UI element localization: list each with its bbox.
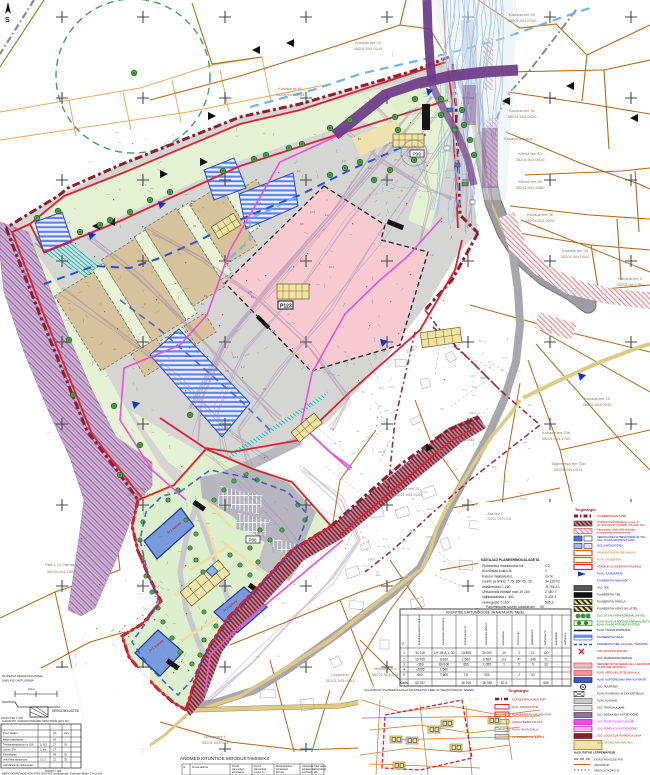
svg-text:suurused: suurused — [302, 771, 313, 774]
svg-text:MERGIKORDADE KRUVITE (EVI M3 L: MERGIKORDADE KRUVITE (EVI M3 Lindistavad… — [2, 772, 102, 775]
svg-text:35201:004:0650: 35201:004:0650 — [508, 114, 538, 119]
svg-text:35201:004:0100: 35201:004:0100 — [394, 492, 424, 497]
svg-text:OLD. KAITSEVÖÖND: OLD. KAITSEVÖÖND — [597, 544, 623, 548]
svg-text:1C: 1C — [464, 673, 469, 677]
svg-text:märkused: märkused — [563, 633, 567, 645]
svg-text:35201:004:044: 35201:004:044 — [202, 740, 229, 745]
svg-text:kõlv: kõlv — [516, 369, 521, 373]
svg-text:GL: GL — [64, 743, 68, 747]
svg-text:liitmisel: liitmisel — [276, 771, 284, 774]
svg-text:690: 690 — [417, 673, 423, 677]
svg-text:35201: 35201 — [469, 411, 477, 415]
svg-text:35201:004:1580: 35201:004:1580 — [516, 185, 546, 190]
svg-text:595 1: 595 1 — [545, 600, 554, 604]
svg-text:34 115 92: 34 115 92 — [545, 580, 560, 584]
svg-text:OMANDIPIIR: OMANDIPIIR — [594, 763, 610, 767]
svg-text:Kanada tee 44: Kanada tee 44 — [355, 40, 382, 45]
svg-text:veevõrkanalisatsioon: veevõrkanalisatsioon — [3, 758, 28, 762]
svg-text:2: 2 — [518, 663, 520, 667]
svg-text:hoonete arv: hoonete arv — [516, 631, 520, 645]
svg-text:4.5: 4.5 — [440, 407, 444, 411]
svg-text:1.2: 1.2 — [445, 522, 449, 526]
svg-text:1.2: 1.2 — [412, 463, 416, 467]
svg-text:Kanada tee 42a: Kanada tee 42a — [504, 136, 533, 141]
svg-text:1.2: 1.2 — [297, 169, 301, 173]
svg-text:2: 2 — [518, 651, 520, 655]
svg-text:12.4: 12.4 — [310, 210, 316, 214]
svg-text:71: 71 — [544, 658, 548, 662]
svg-text:PLAN. PUURKAEV JA SAN.KAITSEAL: PLAN. PUURKAEV JA SAN.KAITSEALA — [597, 692, 644, 696]
svg-text:Kanada tee 24b: Kanada tee 24b — [542, 430, 571, 435]
svg-text:87.6: 87.6 — [501, 681, 507, 685]
svg-text:OLD. TELEFONI JAOTUSKAPP: OLD. TELEFONI JAOTUSKAPP — [597, 720, 635, 724]
svg-text:suurim ja ümber 7.75..85/-X5..: suurim ja ümber 7.75..85/-X5...30 — [482, 580, 532, 584]
svg-text:NÄITAJAD PLANEERINGUALADETA: NÄITAJAD PLANEERINGUALADETA — [481, 558, 540, 562]
svg-text:S: S — [5, 17, 10, 24]
svg-text:Lepatriinu: Lepatriinu — [331, 672, 349, 677]
svg-text:Jõe tee 2: Jõe tee 2 — [487, 511, 504, 516]
svg-text:SÕIDUTEE 1:400: SÕIDUTEE 1:400 — [1, 715, 24, 720]
svg-text:4.5: 4.5 — [225, 369, 229, 373]
svg-text:4: 4 — [403, 668, 405, 672]
svg-text:1.2: 1.2 — [473, 442, 477, 446]
svg-text:Laane tee 2: Laane tee 2 — [449, 431, 471, 436]
svg-text:2: 2 — [403, 658, 405, 662]
svg-text:Üh/100: Üh/100 — [439, 663, 450, 667]
svg-text:35201: 35201 — [480, 376, 488, 380]
svg-text:KRUNTIDE EHITUSÕIGUSE JA NÄITA: KRUNTIDE EHITUSÕIGUSE JA NÄITAJATE TABEL — [446, 610, 525, 615]
svg-text:1.2: 1.2 — [325, 213, 329, 217]
svg-text:ikkija kvaliteasest: ikkija kvaliteasest — [3, 738, 23, 742]
svg-text:Tingmärgid: Tingmärgid — [508, 689, 529, 693]
svg-text:13 800: 13 800 — [461, 651, 471, 655]
svg-text:35201: 35201 — [520, 497, 528, 501]
svg-text:149: 149 — [530, 658, 536, 662]
svg-text:123: 123 — [543, 651, 549, 655]
svg-text:PLAN. JUURDEPÄÄS: PLAN. JUURDEPÄÄS — [597, 572, 623, 576]
svg-text:kõlv: kõlv — [376, 573, 381, 577]
svg-text:Metsavahi 4: Metsavahi 4 — [204, 734, 226, 739]
svg-text:35201:004:0034: 35201:004:0034 — [487, 517, 512, 521]
svg-text:Planeeritud maakasutus ha: Planeeritud maakasutus ha — [482, 564, 523, 568]
svg-text:~2000: ~2000 — [416, 668, 425, 672]
svg-text:35203:004:0005: 35203:004:0005 — [526, 218, 556, 223]
svg-text:Kanada tee 3: Kanada tee 3 — [618, 276, 643, 281]
svg-text:35201:004:1750: 35201:004:1750 — [542, 436, 572, 441]
svg-text:35201: 35201 — [438, 449, 446, 453]
svg-text:PLAN. TÄNAVA PIKIPROFIIL: PLAN. TÄNAVA PIKIPROFIIL — [597, 628, 631, 632]
svg-text:8.1: 8.1 — [343, 525, 347, 529]
svg-text:35201:004:0045: 35201:004:0045 — [583, 402, 613, 407]
svg-text:Jaotus 376: Jaotus 376 — [3, 748, 16, 752]
svg-text:1.2: 1.2 — [206, 134, 210, 138]
svg-text:Kanada tee 36: Kanada tee 36 — [527, 212, 554, 217]
svg-text:kavandatav sihtotstarve: kavandatav sihtotstarve — [441, 617, 445, 645]
svg-text:suurus m²: suurus m² — [254, 771, 265, 774]
svg-text:12.4: 12.4 — [256, 201, 262, 205]
svg-text:1.2: 1.2 — [383, 537, 387, 541]
svg-text:Krundi aadress: Krundi aadress — [192, 766, 209, 769]
svg-text:-: - — [64, 739, 65, 742]
svg-text:VAJADUSEL RISTMIKUL: VAJADUSEL RISTMIKUL — [597, 665, 627, 669]
svg-text:krundi suurus m²: krundi suurus m² — [463, 626, 467, 645]
svg-text:tee: tee — [443, 559, 447, 563]
svg-text:P99: P99 — [413, 152, 422, 157]
svg-text:LIIKLUSOHTLIK RISTMIK: LIIKLUSOHTLIK RISTMIK — [597, 649, 628, 653]
svg-text:12.4: 12.4 — [305, 402, 311, 406]
svg-text:kõlv: kõlv — [379, 386, 384, 390]
svg-text:34 115: 34 115 — [415, 651, 425, 655]
svg-text:35203:004:106: 35203:004:106 — [127, 492, 154, 497]
svg-text:5: 5 — [403, 673, 405, 677]
svg-text:1.9..05 Ä.1..30: 1.9..05 Ä.1..30 — [434, 651, 455, 655]
svg-text:lub: lub — [53, 731, 57, 735]
svg-text:asfalteeritud C 160: asfalteeritud C 160 — [482, 585, 511, 589]
svg-text:P123: P123 — [280, 304, 292, 310]
svg-text:10: 10 — [502, 651, 506, 655]
svg-text:Kõrtsli tee 40: Kõrtsli tee 40 — [518, 151, 542, 156]
svg-text:4.5: 4.5 — [506, 372, 510, 376]
svg-text:8.1: 8.1 — [362, 536, 366, 540]
svg-text:korruselisus: korruselisus — [501, 630, 505, 645]
svg-text:KASUTATUD LEPPEMÄRGID: KASUTATUD LEPPEMÄRGID — [574, 751, 616, 755]
svg-text:T 600: T 600 — [440, 673, 448, 677]
svg-text:1: 1 — [545, 569, 547, 573]
svg-text:PLAN. EHITUSALA: PLAN. EHITUSALA — [512, 728, 538, 732]
svg-text:12.4: 12.4 — [233, 355, 239, 359]
svg-text:2: 2 — [518, 673, 520, 677]
svg-text:35201: 35201 — [368, 557, 376, 561]
svg-text:Kõrtsli tee 28: Kõrtsli tee 28 — [518, 179, 542, 184]
svg-text:12.4: 12.4 — [433, 460, 439, 464]
svg-text:605: 605 — [543, 681, 549, 685]
svg-text:Männituka 4: Männituka 4 — [374, 666, 397, 671]
svg-text:PLAN. KERGLIIKLUSTEE MAA-ALA: PLAN. KERGLIIKLUSTEE MAA-ALA — [597, 671, 640, 675]
svg-text:3: 3 — [403, 663, 405, 667]
svg-text:-8 756 23: -8 756 23 — [545, 585, 559, 589]
svg-text:OLD. TRAFOALAJAAM: OLD. TRAFOALAJAAM — [597, 706, 624, 710]
svg-text:1C: 1C — [531, 651, 536, 655]
svg-text:ÕLITERJA KERGLIIKLUSTEE: ÕLITERJA KERGLIIKLUSTEE — [2, 673, 43, 678]
svg-text:kõlv: kõlv — [402, 539, 407, 543]
svg-text:4.5: 4.5 — [368, 166, 372, 170]
svg-text:1: 1 — [503, 663, 505, 667]
svg-text:8.1: 8.1 — [251, 295, 255, 299]
svg-text:PLANEERITAV PARKLA: PLANEERITAV PARKLA — [597, 600, 626, 604]
svg-text:6/100: 6/100 — [440, 658, 448, 662]
svg-text:12.4: 12.4 — [422, 490, 428, 494]
svg-text:35203:004:106: 35203:004:106 — [47, 569, 74, 574]
svg-text:10 700: 10 700 — [415, 658, 425, 662]
svg-text:8.1: 8.1 — [201, 302, 205, 306]
svg-text:8.1: 8.1 — [204, 294, 208, 298]
svg-text:Kadaka tn 45: Kadaka tn 45 — [278, 86, 302, 91]
svg-text:1.2: 1.2 — [342, 159, 346, 163]
svg-text:8.1: 8.1 — [479, 339, 483, 343]
svg-text:12.4: 12.4 — [470, 374, 476, 378]
svg-text:4.5: 4.5 — [229, 166, 233, 170]
svg-text:ehitusalune pind m²: ehitusalune pind m² — [484, 622, 488, 645]
svg-text:12.4: 12.4 — [329, 265, 335, 269]
svg-text:OLD. MAAPARANDUSKRAAV: OLD. MAAPARANDUSKRAAV — [597, 656, 632, 660]
svg-text:OLD. LOODUSLIK PUHKEALA 1 EHA: OLD. LOODUSLIK PUHKEALA 1 EHA — [597, 734, 642, 738]
svg-text:haljastusalasid L 400: haljastusalasid L 400 — [482, 595, 514, 599]
svg-text:38 755: 38 755 — [482, 681, 492, 685]
svg-text:35201:004:0144: 35201:004:0144 — [354, 46, 384, 51]
svg-text:12.4: 12.4 — [367, 435, 373, 439]
svg-text:Tingmärgid: Tingmärgid — [575, 508, 596, 512]
svg-text:6J: 6J — [531, 673, 535, 677]
svg-text:Nr: Nr — [401, 642, 405, 645]
svg-text:35201: 35201 — [378, 450, 386, 454]
svg-text:1/ 110: 1/ 110 — [40, 743, 48, 747]
svg-text:PLANEERITAV TEE: PLANEERITAV TEE — [597, 593, 620, 597]
svg-text:PLAN. KRUNDI PIIR: PLAN. KRUNDI PIIR — [597, 558, 621, 562]
svg-text:juurdepääs: juurdepääs — [554, 631, 558, 646]
svg-text:ANDMED KRUNTIDE MOODUSTAMISEKS: ANDMED KRUNTIDE MOODUSTAMISEKS — [180, 756, 270, 761]
svg-text:tee: tee — [528, 403, 532, 407]
svg-text:Ühiskondlik ehitiste max 3h 16: Ühiskondlik ehitiste max 3h 160 — [482, 590, 530, 594]
svg-text:12.4: 12.4 — [518, 491, 524, 495]
svg-text:35201:004:0034: 35201:004:0034 — [446, 437, 476, 442]
svg-text:-: - — [556, 658, 557, 662]
svg-text:12.4: 12.4 — [475, 453, 481, 457]
svg-text:3.0 m: 3.0 m — [28, 687, 36, 691]
svg-text:4.5: 4.5 — [411, 497, 415, 501]
svg-text:4.5: 4.5 — [300, 222, 304, 226]
svg-text:L 500: L 500 — [440, 668, 448, 672]
svg-text:KERGLIIKLUSTEE: KERGLIIKLUSTEE — [52, 709, 79, 713]
svg-text:PLANEERINGUALA PIIR: PLANEERINGUALA PIIR — [512, 698, 547, 702]
svg-text:200: 200 — [484, 673, 490, 677]
svg-text:Pikk v 10 Parnas: Pikk v 10 Parnas — [45, 562, 75, 567]
svg-text:kõlv: kõlv — [465, 507, 470, 511]
svg-text:PLANEERITAV KRAAV: PLANEERITAV KRAAV — [597, 635, 624, 639]
svg-text:sihtotstarve: sihtotstarve — [232, 771, 245, 774]
svg-text:650: 650 — [463, 663, 469, 667]
svg-text:12.4: 12.4 — [427, 507, 433, 511]
svg-text:Kanada tee 10: Kanada tee 10 — [584, 396, 611, 401]
svg-text:1.1.2: 1.1.2 — [40, 758, 46, 762]
svg-text:OLD. JA UUS EHITISTE KUJAD: OLD. JA UUS EHITISTE KUJAD — [597, 538, 635, 542]
svg-text:8.1: 8.1 — [358, 137, 362, 141]
svg-text:Nr: Nr — [183, 766, 186, 769]
svg-text:VÄLJASPOOL PLANEERINGUALA KAVA: VÄLJASPOOL PLANEERINGUALA KAVANDATUD TEE… — [364, 687, 474, 692]
svg-text:-: - — [486, 668, 487, 672]
svg-text:Krundialad kokku tk: Krundialad kokku tk — [482, 569, 512, 573]
svg-text:tee: tee — [356, 429, 360, 433]
svg-text:1.2: 1.2 — [241, 365, 245, 369]
svg-text:35201: 35201 — [499, 407, 507, 411]
svg-text:35201:001:0760: 35201:001:0760 — [508, 18, 538, 23]
svg-text:OLD. TEE: OLD. TEE — [597, 586, 609, 590]
svg-text:~560: ~560 — [416, 663, 423, 667]
svg-text:1/ tko: 1/ tko — [40, 748, 47, 752]
svg-text:1 600: 1 600 — [462, 658, 470, 662]
svg-text:-: - — [556, 663, 557, 667]
svg-text:Elektrikanal: Elektrikanal — [3, 753, 17, 757]
svg-text:Tagametsa tee 78a: Tagametsa tee 78a — [551, 461, 586, 466]
svg-text:värv: värv — [64, 731, 70, 735]
svg-text:4.5: 4.5 — [248, 290, 252, 294]
svg-text:MA: MA — [314, 771, 318, 774]
svg-text:KAVANDATAV ERATEE (AVALIK): KAVANDATAV ERATEE (AVALIK) — [597, 551, 636, 555]
svg-text:1.2: 1.2 — [407, 350, 411, 354]
svg-text:Plaak tee 17: Plaak tee 17 — [129, 486, 152, 491]
svg-text:tee: tee — [468, 499, 472, 503]
svg-text:35201:004:0144: 35201:004:0144 — [276, 92, 306, 97]
svg-text:16 100: 16 100 — [461, 681, 471, 685]
svg-text:hoonestusala tiheasustusalal: hoonestusala tiheasustusalal — [597, 531, 631, 535]
svg-text:35201:004:0041: 35201:004:0041 — [326, 678, 356, 683]
svg-text:ASFALTEERITUD ALA: ASFALTEERITUD ALA — [512, 720, 542, 724]
svg-text:35201:004:0810: 35201:004:0810 — [516, 157, 546, 162]
svg-text:2 450 7: 2 450 7 — [545, 590, 556, 594]
svg-text:-: - — [465, 668, 466, 672]
svg-text:OLD. KRUNDI PIIR: OLD. KRUNDI PIIR — [512, 705, 539, 709]
svg-text:Jahtriiklejandu tellusandev: Jahtriiklejandu tellusandev — [3, 763, 34, 767]
svg-text:KAVANDATAV VEE- JA KANAL. TORU: KAVANDATAV VEE- JA KANAL. TORUSTIK — [597, 642, 648, 646]
svg-text:tee: tee — [378, 404, 382, 408]
svg-text:tee: tee — [477, 411, 481, 415]
svg-text:1 055: 1 055 — [483, 663, 491, 667]
svg-text:Katend maakasutus: Katend maakasutus — [482, 574, 512, 578]
svg-text:1.2: 1.2 — [430, 253, 434, 257]
svg-text:30 000: 30 000 — [482, 651, 492, 655]
svg-text:PLANEERINGUALA PIIR: PLANEERINGUALA PIIR — [597, 514, 626, 518]
svg-text:1.2: 1.2 — [448, 341, 452, 345]
svg-text:3.2: 3.2 — [502, 658, 507, 662]
svg-text:JA OLD KRUNT (KAVAND. OT SAR.: JA OLD KRUNT (KAVAND. OT SAR. OS) — [597, 523, 645, 527]
svg-text:35201:004:0013: 35201:004:0013 — [554, 467, 584, 472]
svg-text:4.5: 4.5 — [418, 473, 422, 477]
svg-text:PLAN. ALAJAAM: PLAN. ALAJAAM — [597, 699, 617, 703]
svg-text:Kanada tee 34: Kanada tee 34 — [562, 248, 589, 253]
svg-text:kõlv: kõlv — [472, 385, 477, 389]
svg-text:1.2: 1.2 — [503, 356, 507, 360]
svg-text:PLAN. KORTERELAMU MAA-ALA KRUN: PLAN. KORTERELAMU MAA-ALA KRUNT — [597, 678, 647, 682]
svg-text:8.1: 8.1 — [389, 141, 393, 145]
svg-text:1.2: 1.2 — [545, 564, 550, 568]
svg-text:35201: 35201 — [426, 535, 434, 539]
svg-text:8.1: 8.1 — [454, 467, 458, 471]
svg-text:PLANEERITAV KERGLIIKLUSTEE: PLANEERITAV KERGLIIKLUSTEE — [597, 607, 638, 611]
svg-text:haljastuse %: haljastuse % — [543, 630, 547, 645]
svg-text:1: 1 — [403, 651, 405, 655]
svg-text:Telekanalistatsiooni tn 106: Telekanalistatsiooni tn 106 — [3, 743, 34, 747]
svg-text:SAELINE ÜHITUSRIBA: SAELINE ÜHITUSRIBA — [2, 679, 34, 683]
svg-text:Krevi tänaba: Krevi tänaba — [3, 731, 18, 735]
svg-text:8.1: 8.1 — [362, 390, 366, 394]
svg-text:Parkimiskohti suurim lubatud a: Parkimiskohti suurim lubatud arv — [486, 605, 535, 609]
svg-text:Kokku: Kokku — [400, 681, 409, 685]
svg-text:Kanada tee 42: Kanada tee 42 — [509, 108, 536, 113]
svg-text:35201:004:044: 35201:004:044 — [372, 672, 399, 677]
svg-text:KATASTRIÜKSUSE PIIR: KATASTRIÜKSUSE PIIR — [594, 758, 623, 762]
svg-text:OLD. SIDEKAABLI KAITSEVÖÖND: OLD. SIDEKAABLI KAITSEVÖÖND — [597, 713, 638, 717]
svg-text:32: 32 — [544, 663, 548, 667]
svg-text:kõlv: kõlv — [492, 465, 497, 469]
svg-text:35201:004:0040: 35201:004:0040 — [561, 254, 591, 259]
svg-text:8.1: 8.1 — [191, 199, 195, 203]
svg-text:OLD. ÜKSIKELAMU MAA-ALA: OLD. ÜKSIKELAMU MAA-ALA — [597, 741, 633, 745]
svg-text:12.4: 12.4 — [389, 385, 395, 389]
svg-text:1.2: 1.2 — [456, 434, 460, 438]
svg-text:OLD. PUMPLA JA KAITSEVÖÖND: OLD. PUMPLA JA KAITSEVÖÖND — [597, 727, 637, 731]
svg-text:50 787: 50 787 — [415, 681, 425, 685]
svg-text:35201: 35201 — [409, 529, 417, 533]
svg-text:veekogusid T 160: veekogusid T 160 — [482, 600, 509, 604]
svg-text:parkimiskohti: parkimiskohti — [530, 629, 534, 645]
svg-text:2 434 4: 2 434 4 — [545, 595, 556, 599]
svg-text:12.4: 12.4 — [270, 329, 276, 333]
svg-text:4.5: 4.5 — [330, 427, 334, 431]
svg-text:krundi planeeritud aadress: krundi planeeritud aadress — [417, 614, 421, 645]
svg-text:1.2: 1.2 — [379, 494, 383, 498]
svg-text:1.2: 1.2 — [347, 390, 351, 394]
svg-text:39: 39 — [540, 605, 544, 609]
svg-text:1.2: 1.2 — [360, 472, 364, 476]
svg-text:Laane tee 21: Laane tee 21 — [396, 486, 420, 491]
svg-text:6 900: 6 900 — [483, 658, 491, 662]
svg-text:m² %: m² % — [545, 574, 553, 578]
svg-text:P88: P88 — [249, 538, 258, 543]
svg-text:OLD. PUURKAEV: OLD. PUURKAEV — [597, 685, 618, 689]
svg-text:5: 5 — [532, 663, 534, 667]
svg-text:35201:08:1360: 35201:08:1360 — [617, 282, 644, 287]
svg-text:-: - — [556, 651, 557, 655]
svg-text:Kanada tee 45: Kanada tee 45 — [509, 12, 536, 17]
